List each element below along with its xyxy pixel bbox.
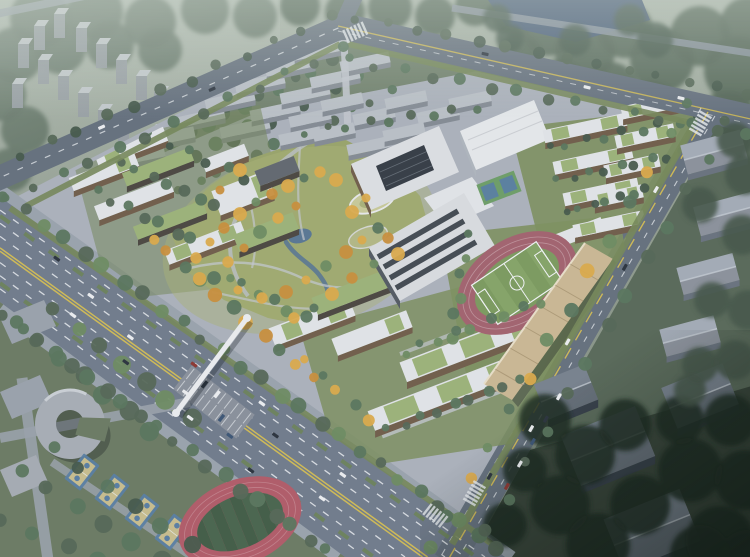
tree [78, 246, 94, 262]
tree [95, 515, 113, 533]
tree [499, 311, 510, 322]
autumn-tree [370, 260, 379, 269]
tree [234, 361, 248, 375]
tree [117, 275, 133, 291]
tree [464, 230, 472, 238]
tree [300, 311, 312, 323]
tree [59, 167, 69, 177]
tree [249, 491, 265, 507]
autumn-tree [358, 236, 367, 245]
aerial-rendering [0, 0, 750, 557]
autumn-tree [300, 174, 309, 183]
tree [561, 143, 568, 150]
autumn-tree [362, 194, 371, 203]
tree [94, 186, 102, 194]
tree [137, 372, 156, 391]
tree [341, 125, 349, 133]
tree [106, 198, 115, 207]
tree [319, 371, 328, 380]
tree [122, 532, 141, 551]
autumn-tree [266, 188, 277, 199]
tree [135, 285, 150, 300]
corner-shadow-overlay [420, 330, 750, 557]
tree [198, 460, 212, 474]
tree [564, 303, 579, 318]
tree [155, 390, 175, 410]
tree [332, 427, 346, 441]
tree [149, 235, 159, 245]
tree [160, 245, 170, 255]
tree [628, 161, 638, 171]
tree [391, 474, 403, 486]
autumn-tree [302, 276, 311, 285]
tree [233, 484, 249, 500]
tree [93, 257, 109, 273]
tree [290, 398, 306, 414]
tree [73, 322, 87, 336]
tree [1, 194, 9, 202]
autumn-tree [391, 247, 405, 261]
tree [49, 441, 61, 453]
tree [454, 269, 464, 279]
autumn-tree [218, 222, 229, 233]
tree [139, 133, 151, 145]
autumn-tree [233, 163, 247, 177]
tree [564, 209, 571, 216]
tree [72, 462, 84, 474]
tree [680, 183, 692, 195]
tree [354, 446, 367, 459]
autumn-tree [339, 245, 353, 259]
tree [350, 399, 361, 410]
autumn-tree [216, 186, 225, 195]
tree [275, 388, 291, 404]
tree [290, 359, 301, 370]
tree [403, 422, 411, 430]
autumn-tree [382, 232, 393, 243]
autumn-tree [234, 286, 243, 295]
tree [101, 480, 115, 494]
tree [152, 518, 169, 535]
tree [237, 278, 246, 287]
tree [309, 373, 319, 383]
tree [273, 344, 285, 356]
tree [712, 125, 724, 137]
tree [150, 420, 162, 432]
autumn-tree [346, 272, 357, 283]
forest-canopy [694, 282, 730, 318]
tree [518, 301, 528, 311]
tree [25, 527, 39, 541]
tree [617, 289, 632, 304]
tree [70, 498, 86, 514]
tree [455, 293, 466, 304]
tree [602, 234, 616, 248]
tree [16, 464, 29, 477]
tree [166, 142, 174, 150]
autumn-tree [207, 271, 221, 285]
tree [49, 346, 64, 361]
tree [259, 329, 273, 343]
tree [580, 263, 595, 278]
autumn-tree [314, 166, 325, 177]
tree [599, 168, 608, 177]
tree [376, 457, 387, 468]
tree [46, 302, 59, 315]
tree [152, 216, 164, 228]
tree [193, 272, 206, 285]
tree [100, 383, 116, 399]
footbridge-landing [243, 314, 251, 322]
autumn-tree [281, 179, 295, 193]
tree [155, 305, 169, 319]
tree [61, 538, 77, 554]
autumn-tree [310, 304, 319, 313]
autumn-tree [206, 238, 215, 247]
autumn-tree [233, 207, 247, 221]
tree [179, 315, 191, 327]
autumn-tree [252, 198, 261, 207]
autumn-tree [256, 292, 267, 303]
tree [48, 135, 58, 145]
tree [641, 166, 653, 178]
tree [269, 294, 280, 305]
atmospheric-haze [0, 0, 750, 120]
tree [38, 219, 51, 232]
tree [195, 335, 205, 345]
tree [134, 410, 148, 424]
autumn-tree [240, 244, 249, 253]
tree [666, 128, 676, 138]
tree [447, 308, 459, 320]
campus-masterplan-rendering [0, 0, 750, 557]
tree [583, 134, 591, 142]
tree [315, 416, 330, 431]
tree [184, 232, 196, 244]
tree [79, 369, 95, 385]
tree [113, 394, 128, 409]
tree [639, 127, 649, 137]
tree [29, 184, 38, 193]
tree [300, 355, 308, 363]
tree [403, 351, 411, 359]
tree [172, 228, 184, 240]
tree [661, 221, 674, 234]
tree [185, 145, 194, 154]
autumn-tree [190, 252, 201, 263]
tree [195, 193, 207, 205]
tree [325, 123, 332, 130]
tree [219, 467, 234, 482]
tree [270, 509, 285, 524]
tree [547, 142, 554, 149]
tree [128, 498, 144, 514]
tree [70, 126, 81, 137]
tree [82, 158, 93, 169]
tree [320, 543, 331, 554]
autumn-tree [345, 205, 359, 219]
tree [600, 197, 609, 206]
tree [129, 165, 138, 174]
autumn-tree [272, 212, 283, 223]
tree [585, 167, 593, 175]
autumn-tree [279, 285, 293, 299]
tree [227, 300, 242, 315]
tree [623, 195, 636, 208]
tree [39, 481, 53, 495]
tree [91, 337, 107, 353]
autumn-tree [222, 256, 233, 267]
tree [161, 179, 172, 190]
autumn-tree [329, 173, 343, 187]
tree [201, 158, 211, 168]
autumn-tree [372, 222, 383, 233]
tree [572, 175, 579, 182]
tree [552, 175, 559, 182]
tree [114, 141, 126, 153]
tree [618, 160, 628, 170]
tree [224, 162, 235, 173]
tree [124, 201, 134, 211]
tree [486, 313, 497, 324]
tree [178, 185, 190, 197]
tree [305, 535, 318, 548]
tree [462, 254, 471, 263]
tree [382, 424, 390, 432]
tree [149, 172, 159, 182]
tree [536, 299, 545, 308]
tree [617, 126, 627, 136]
tree [283, 517, 297, 531]
tree [574, 205, 581, 212]
tree [600, 135, 609, 144]
tree [184, 536, 201, 553]
tree [253, 370, 268, 385]
tree [139, 213, 150, 224]
tree [208, 199, 220, 211]
tree [64, 358, 80, 374]
tree [330, 385, 340, 395]
tree [29, 334, 42, 347]
tree [187, 444, 199, 456]
tree [363, 414, 375, 426]
tree [641, 250, 655, 264]
autumn-tree [253, 225, 267, 239]
tree [640, 183, 650, 193]
autumn-tree [288, 312, 299, 323]
tree [648, 153, 658, 163]
tree [591, 200, 599, 208]
tree [704, 154, 714, 164]
autumn-tree [292, 202, 301, 211]
tree [56, 230, 71, 245]
tree [226, 274, 234, 282]
tree [16, 153, 25, 162]
tree [301, 131, 308, 138]
footbridge-landing [172, 409, 180, 417]
tree [208, 288, 222, 302]
tree [616, 191, 626, 201]
tree [18, 323, 29, 334]
autumn-tree [320, 260, 331, 271]
tree [167, 436, 177, 446]
tree [21, 203, 32, 214]
tree [180, 261, 192, 273]
autumn-tree [325, 287, 339, 301]
